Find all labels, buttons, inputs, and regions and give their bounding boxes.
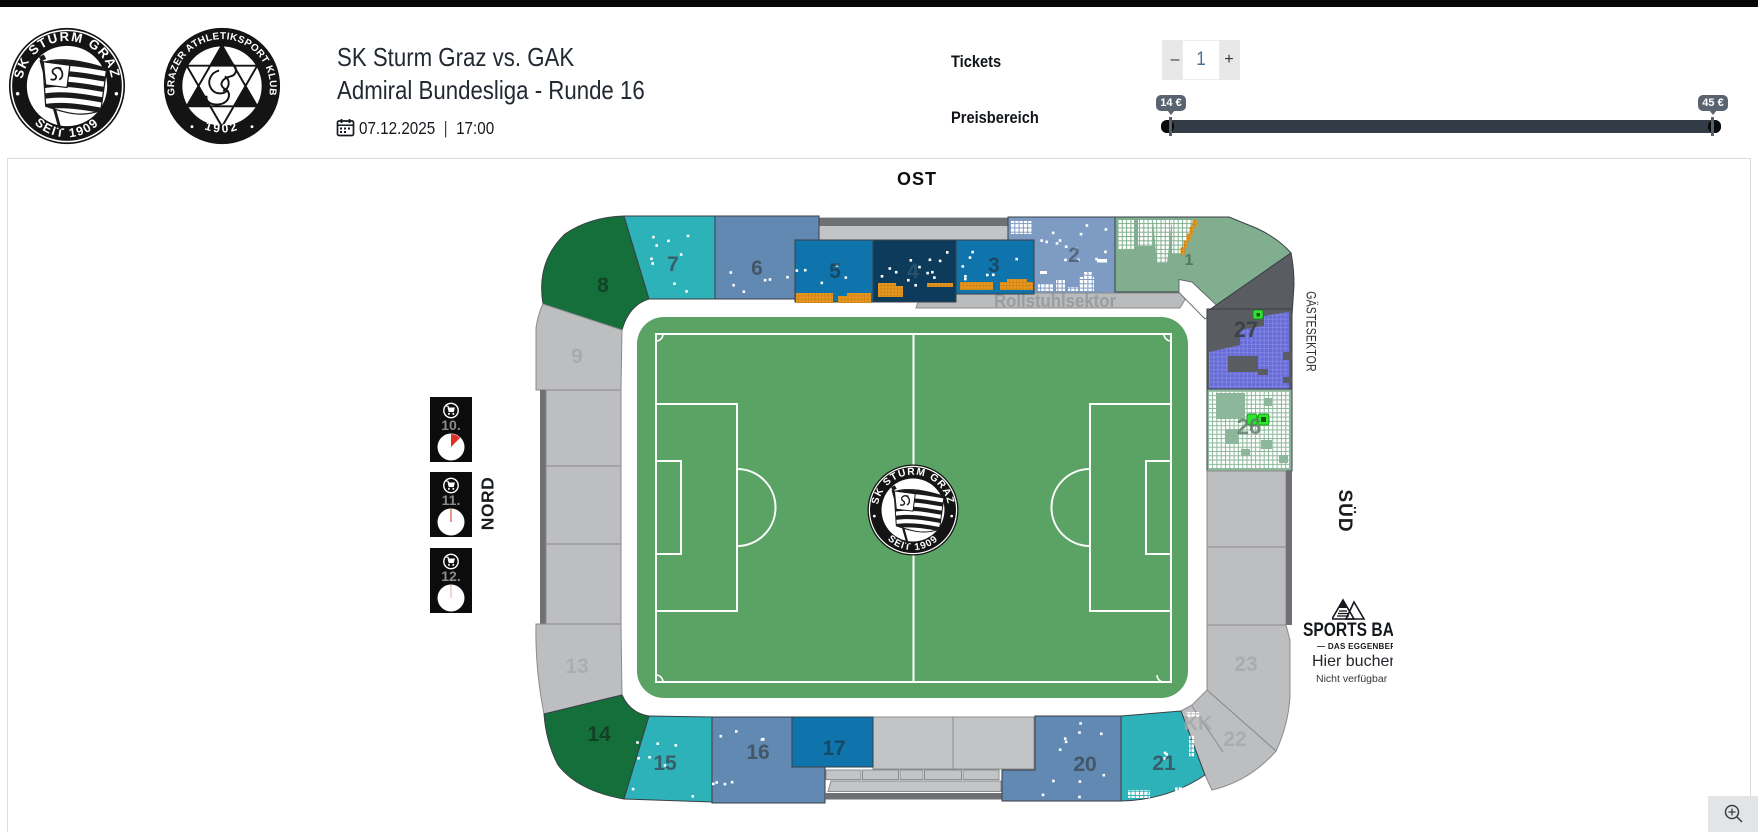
svg-text:27: 27 (1234, 317, 1258, 342)
svg-text:16: 16 (746, 741, 769, 764)
svg-text:23: 23 (1234, 653, 1257, 676)
svg-text:7: 7 (667, 253, 679, 276)
svg-text:26: 26 (1237, 414, 1261, 439)
svg-text:17: 17 (822, 737, 845, 760)
svg-text:11.: 11. (442, 492, 461, 508)
svg-text:8: 8 (597, 274, 609, 297)
svg-text:5: 5 (829, 260, 841, 283)
svg-text:15: 15 (653, 752, 677, 775)
svg-text:6: 6 (751, 257, 763, 280)
svg-text:21: 21 (1152, 752, 1176, 775)
svg-text:KK: KK (1184, 713, 1213, 735)
svg-text:3: 3 (988, 254, 1000, 277)
svg-text:10.: 10. (441, 417, 460, 433)
svg-text:12.: 12. (441, 568, 460, 584)
svg-text:22: 22 (1223, 728, 1246, 751)
svg-text:20: 20 (1073, 753, 1096, 776)
svg-text:2: 2 (1068, 244, 1080, 267)
svg-text:9: 9 (571, 345, 583, 368)
svg-text:14: 14 (587, 723, 611, 746)
svg-text:1: 1 (1185, 252, 1194, 269)
svg-text:4: 4 (907, 260, 919, 283)
svg-text:13: 13 (565, 655, 588, 678)
